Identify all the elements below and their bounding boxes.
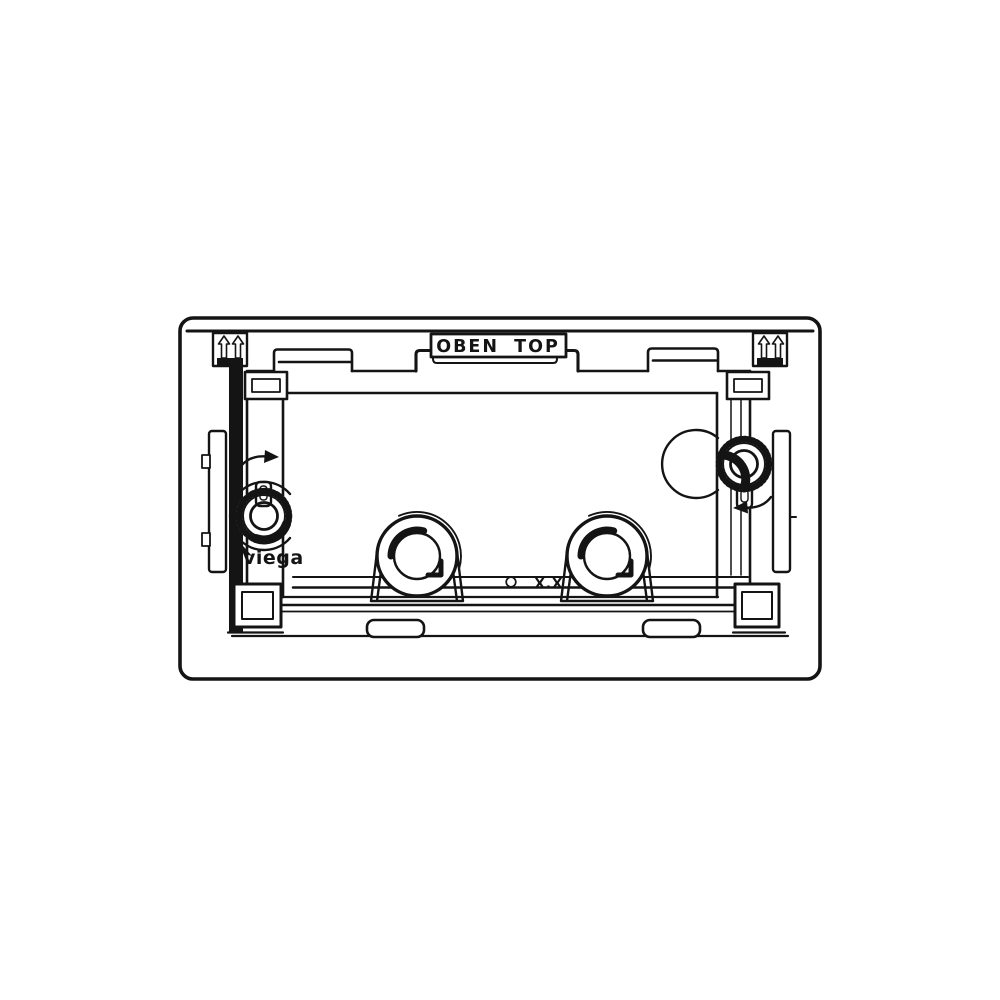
bottom-tab-left	[367, 620, 424, 637]
technical-drawing-page: OBEN TOP viega X.X	[0, 0, 1000, 1000]
mold-marking-circle-icon	[506, 577, 516, 587]
bottom-left-clip	[228, 584, 283, 633]
mold-marking: X.X	[506, 576, 563, 592]
bottom-tab-right	[643, 620, 700, 637]
top-left-bracket	[245, 372, 287, 399]
top-right-bracket	[727, 372, 769, 399]
right-side-rail	[773, 431, 796, 572]
orientation-label-box: OBEN TOP	[431, 334, 566, 357]
inner-opening	[247, 371, 750, 605]
double-up-arrow-icon	[213, 333, 247, 366]
mold-marking-label: X.X	[535, 576, 564, 592]
double-up-arrow-icon	[753, 333, 787, 366]
orientation-label: OBEN TOP	[436, 337, 560, 357]
left-side-rail	[202, 431, 226, 572]
brand-label: viega	[243, 547, 304, 569]
mounting-frame-drawing: OBEN TOP viega X.X	[0, 0, 1000, 1000]
bottom-right-clip	[733, 584, 785, 633]
